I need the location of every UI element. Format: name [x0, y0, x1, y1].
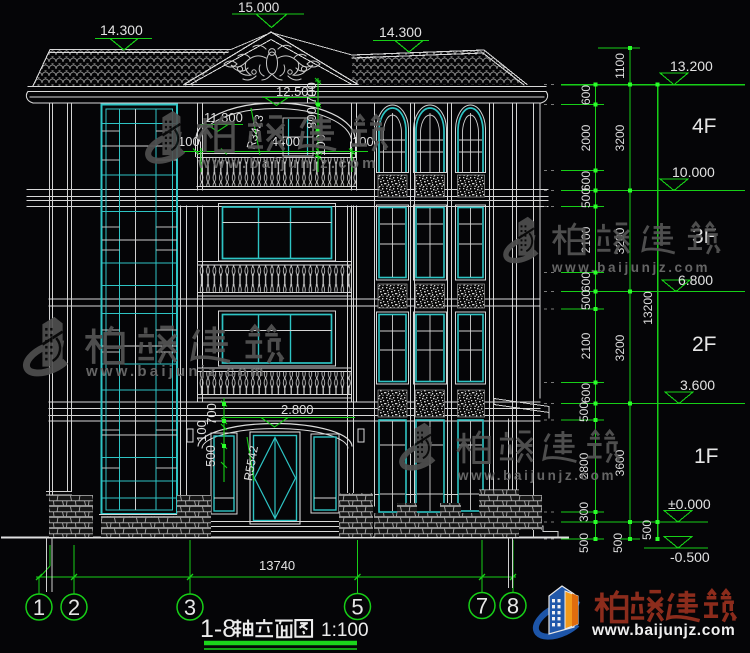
svg-text:1F: 1F	[694, 445, 719, 468]
svg-text:500: 500	[611, 533, 625, 553]
svg-text:500: 500	[579, 188, 593, 208]
svg-text:600: 600	[579, 383, 593, 403]
svg-text:100: 100	[352, 134, 374, 149]
svg-text:500: 500	[640, 520, 654, 540]
svg-text:www.baijunjz.com: www.baijunjz.com	[197, 155, 379, 172]
svg-text:600: 600	[579, 85, 593, 105]
svg-text:2F: 2F	[692, 333, 717, 356]
svg-text:3200: 3200	[613, 334, 627, 361]
svg-text:13200: 13200	[641, 291, 655, 325]
svg-text:4400: 4400	[271, 134, 300, 149]
svg-text:500: 500	[203, 445, 218, 467]
svg-text:-0.500: -0.500	[670, 549, 710, 565]
svg-text:www.baijunjz.com: www.baijunjz.com	[551, 260, 710, 275]
svg-text:300: 300	[577, 502, 591, 522]
svg-text:3: 3	[184, 595, 196, 620]
svg-text:600: 600	[579, 171, 593, 191]
svg-text:3200: 3200	[613, 124, 627, 151]
svg-text:500: 500	[577, 533, 591, 553]
svg-text:15.000: 15.000	[238, 0, 279, 15]
svg-text:1:100: 1:100	[321, 620, 369, 641]
svg-text:500: 500	[579, 290, 593, 310]
svg-text:8: 8	[507, 594, 519, 619]
svg-text:1: 1	[33, 595, 45, 620]
svg-text:www.baijunjz.com: www.baijunjz.com	[85, 363, 267, 380]
svg-text:7: 7	[476, 594, 488, 619]
svg-text:14.300: 14.300	[100, 22, 143, 38]
svg-text:10.000: 10.000	[672, 164, 715, 180]
svg-text:www.baijunjz.com: www.baijunjz.com	[457, 468, 616, 483]
svg-text:100: 100	[194, 420, 209, 442]
svg-text:1-8: 1-8	[200, 615, 236, 643]
svg-text:700: 700	[304, 82, 319, 104]
svg-text:2100: 2100	[579, 332, 593, 359]
svg-text:1100: 1100	[613, 53, 627, 79]
svg-text:±0.000: ±0.000	[668, 496, 711, 512]
svg-text:4F: 4F	[692, 115, 717, 138]
svg-text:2: 2	[68, 595, 80, 620]
svg-text:14.300: 14.300	[379, 24, 422, 40]
svg-text:3.600: 3.600	[680, 377, 715, 393]
svg-text:2.800: 2.800	[281, 402, 314, 417]
svg-text:13.200: 13.200	[670, 58, 713, 74]
svg-text:500: 500	[577, 402, 591, 422]
svg-text:2000: 2000	[579, 124, 593, 151]
svg-text:www.baijunjz.com: www.baijunjz.com	[591, 622, 735, 639]
svg-text:5: 5	[351, 595, 363, 620]
svg-text:13740: 13740	[259, 558, 295, 573]
